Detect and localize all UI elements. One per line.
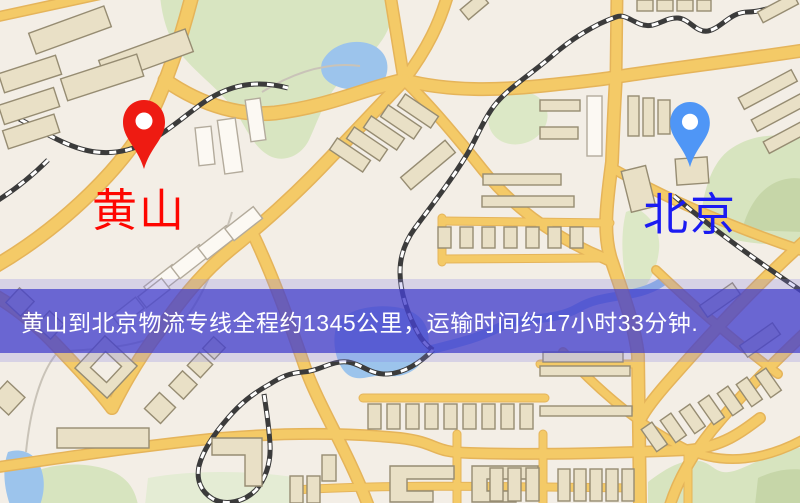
map-image [0, 0, 800, 503]
huangshan-label: 黄山 [92, 174, 186, 239]
route-info-banner: 黄山到北京物流专线全程约1345公里，运输时间约17小时33分钟. [0, 289, 800, 353]
route-info-text: 黄山到北京物流专线全程约1345公里，运输时间约17小时33分钟. [0, 304, 698, 338]
huangshan-pin-icon [121, 99, 167, 171]
screenshot-root: 黄山 北京 黄山到北京物流专线全程约1345公里，运输时间约17小时33分钟. [0, 0, 800, 503]
beijing-pin-icon [668, 101, 712, 169]
beijing-label: 北京 [643, 178, 737, 243]
